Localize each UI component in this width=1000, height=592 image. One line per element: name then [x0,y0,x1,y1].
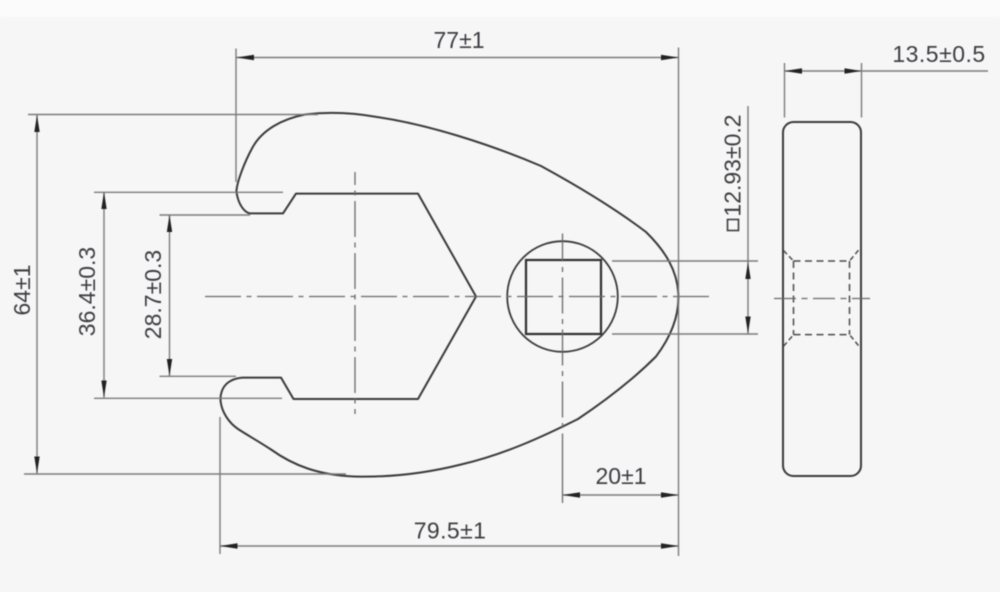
svg-text:12.93±0.2: 12.93±0.2 [720,114,746,216]
svg-text:28.7±0.3: 28.7±0.3 [140,250,166,339]
svg-text:20±1: 20±1 [596,463,647,489]
svg-text:79.5±1: 79.5±1 [414,518,487,544]
svg-text:64±1: 64±1 [9,265,35,316]
svg-text:13.5±0.5: 13.5±0.5 [892,41,985,67]
svg-text:36.4±0.3: 36.4±0.3 [74,247,100,336]
svg-text:77±1: 77±1 [434,27,485,53]
